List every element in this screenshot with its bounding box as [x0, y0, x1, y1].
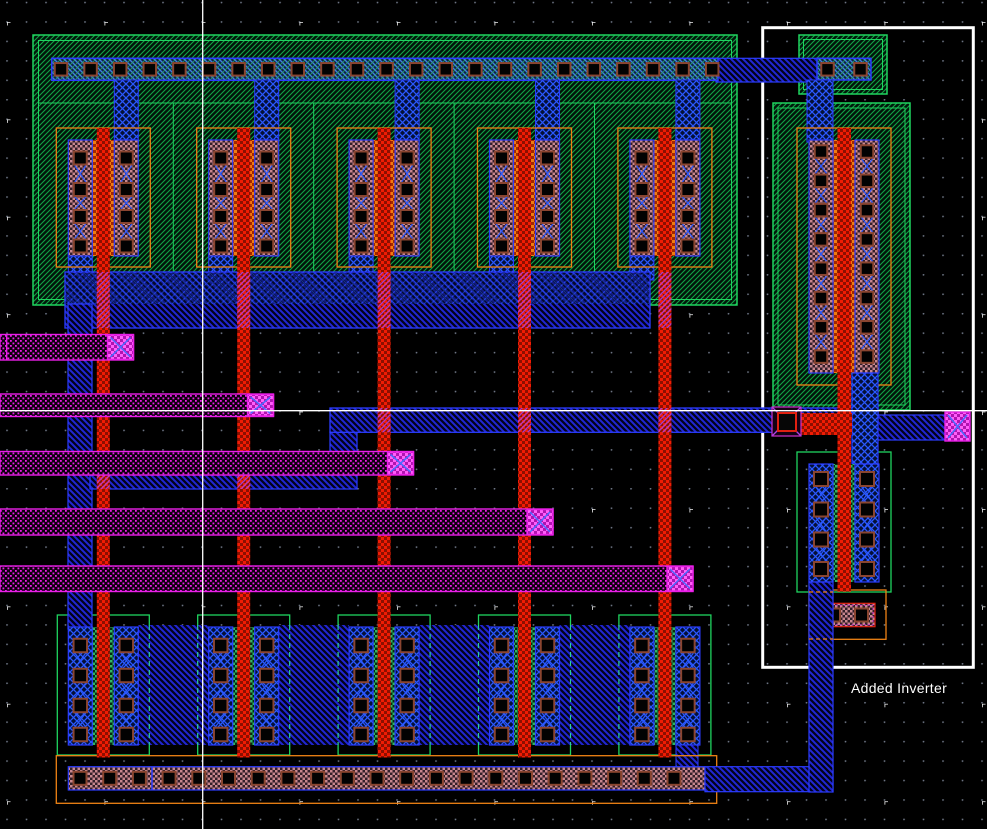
layout-editor-canvas[interactable]: Added Inverter: [0, 0, 987, 829]
input-trace-B[interactable]: [0, 394, 274, 417]
input-trace-C[interactable]: [0, 452, 414, 476]
via-input-B[interactable]: [248, 395, 274, 417]
inverter-gnd-strap[interactable]: [809, 582, 833, 792]
layout-canvas[interactable]: [0, 0, 987, 829]
nmos5-gnd-strap[interactable]: [676, 745, 698, 769]
added-inverter-label[interactable]: Added Inverter: [851, 680, 947, 696]
via-input-A[interactable]: [108, 335, 134, 360]
nmos-bridge-1[interactable]: [138, 625, 208, 745]
input-trace-E[interactable]: [0, 566, 693, 592]
nmos-bridge-3[interactable]: [419, 625, 489, 745]
via-input-D[interactable]: [527, 510, 553, 535]
nmos-bridge-4[interactable]: [560, 625, 630, 745]
nmos-bridge-2[interactable]: [279, 625, 349, 745]
input-trace-D[interactable]: [0, 509, 553, 535]
vdd-rail[interactable]: [52, 58, 871, 82]
via-input-C[interactable]: [388, 452, 414, 475]
via-input-E[interactable]: [667, 567, 693, 592]
via-output[interactable]: [945, 412, 970, 441]
